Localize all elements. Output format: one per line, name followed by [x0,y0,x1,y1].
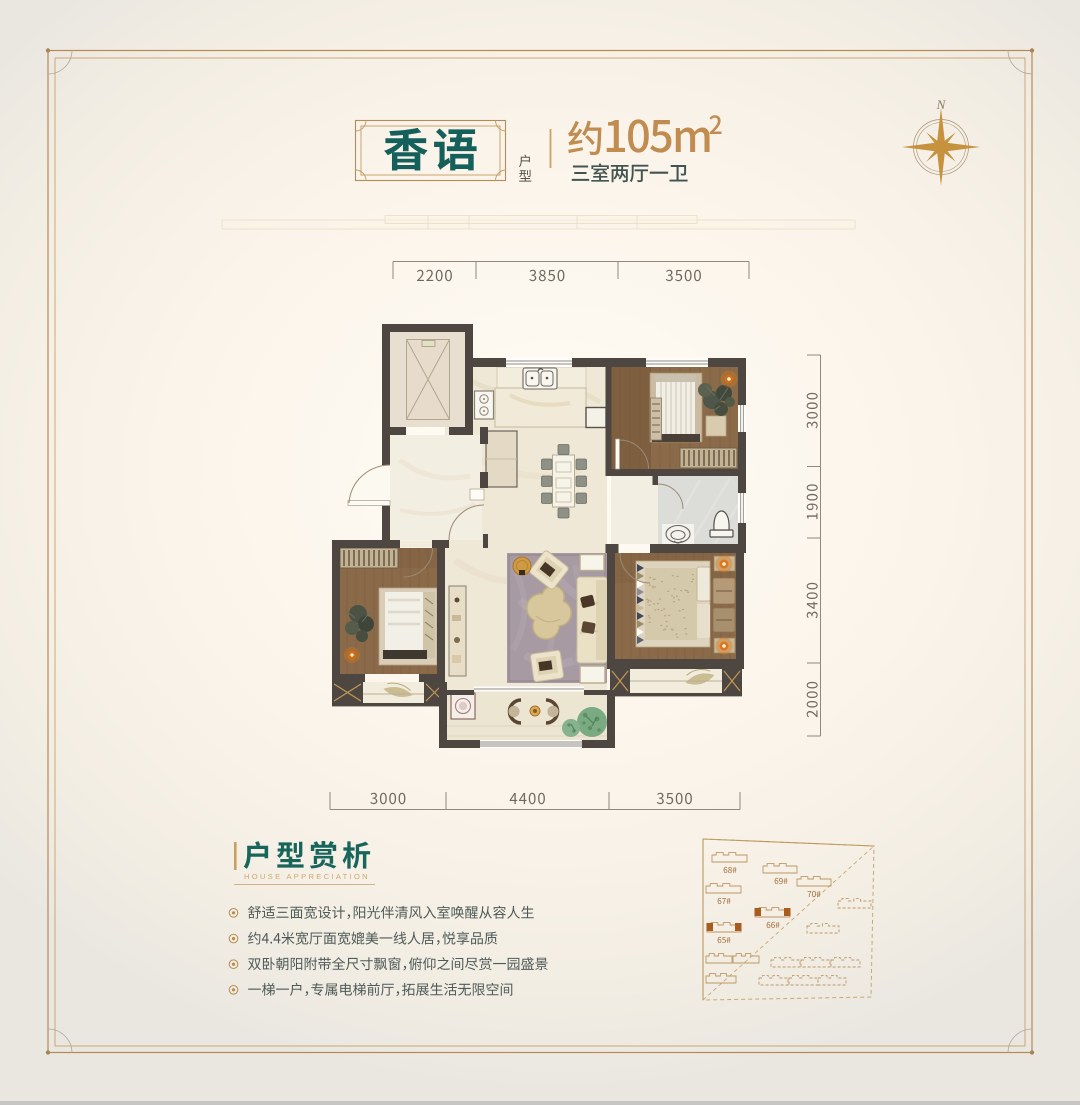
svg-text:N: N [936,97,947,112]
svg-text:HOUSE APPRECIATION: HOUSE APPRECIATION [244,872,370,881]
